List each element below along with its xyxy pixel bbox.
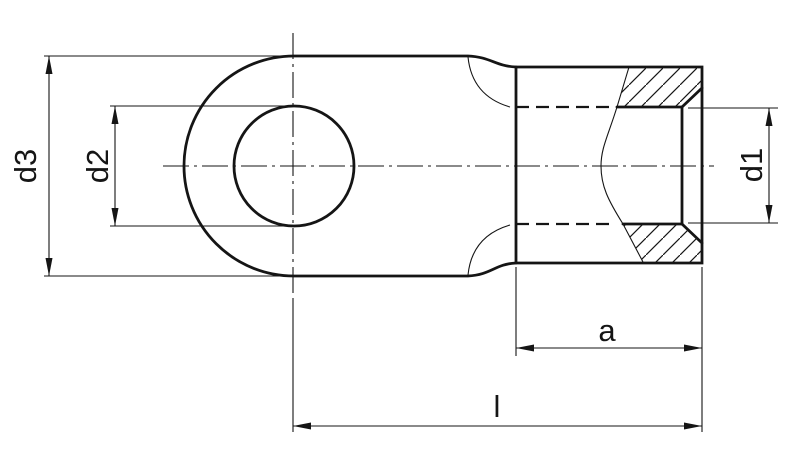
l-arrow-left — [293, 423, 311, 430]
fillet-curve-bottom — [468, 225, 510, 275]
d1-arrow-down — [766, 205, 773, 223]
d2-label: d2 — [80, 149, 115, 183]
d2-arrow-up — [112, 106, 119, 124]
a-arrow-right — [684, 345, 702, 352]
section-hatch-bottom — [623, 224, 702, 262]
l-label: l — [494, 389, 501, 424]
d3-arrow-up — [46, 56, 53, 74]
technical-drawing: d3 d2 d1 a l — [0, 0, 800, 466]
d1-arrow-up — [766, 108, 773, 126]
d3-arrow-down — [46, 258, 53, 276]
a-label: a — [598, 313, 616, 348]
l-arrow-right — [684, 423, 702, 430]
d2-arrow-down — [112, 208, 119, 226]
a-arrow-left — [516, 345, 534, 352]
d1-label: d1 — [734, 148, 769, 182]
d3-label: d3 — [8, 149, 43, 183]
drawing-canvas: d3 d2 d1 a l — [0, 0, 800, 466]
